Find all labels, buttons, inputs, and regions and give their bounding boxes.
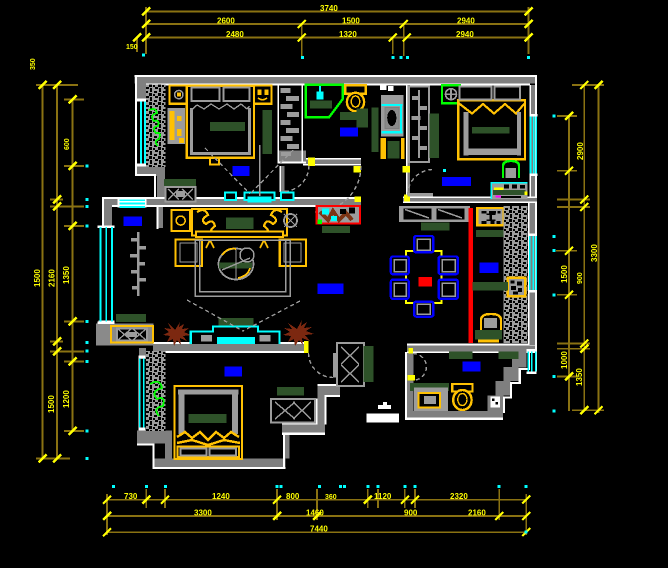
- svg-text:2480: 2480: [226, 30, 244, 39]
- svg-text:1240: 1240: [212, 492, 230, 501]
- svg-text:1500: 1500: [33, 269, 42, 287]
- svg-text:350: 350: [30, 58, 37, 70]
- svg-text:1000: 1000: [560, 351, 569, 369]
- svg-text:2940: 2940: [457, 17, 475, 26]
- svg-text:2900: 2900: [576, 142, 585, 160]
- svg-text:730: 730: [124, 492, 138, 501]
- svg-text:7440: 7440: [310, 525, 328, 534]
- svg-text:1500: 1500: [560, 265, 569, 283]
- svg-text:1460: 1460: [306, 509, 324, 518]
- svg-text:900: 900: [577, 272, 584, 284]
- svg-text:2160: 2160: [48, 269, 57, 287]
- svg-text:3300: 3300: [194, 509, 212, 518]
- svg-text:150: 150: [126, 44, 138, 51]
- svg-text:800: 800: [286, 492, 300, 501]
- svg-text:1120: 1120: [374, 492, 392, 501]
- svg-text:3300: 3300: [590, 244, 599, 262]
- svg-text:600: 600: [64, 138, 71, 150]
- svg-text:2600: 2600: [217, 17, 235, 26]
- svg-text:1320: 1320: [339, 30, 357, 39]
- svg-text:360: 360: [325, 494, 337, 501]
- svg-text:2160: 2160: [468, 509, 486, 518]
- svg-text:1200: 1200: [62, 390, 71, 408]
- svg-text:2320: 2320: [450, 492, 468, 501]
- svg-text:2940: 2940: [456, 30, 474, 39]
- svg-text:1350: 1350: [62, 266, 71, 284]
- svg-text:900: 900: [404, 509, 418, 518]
- svg-text:1500: 1500: [47, 395, 56, 413]
- svg-text:1350: 1350: [575, 368, 584, 386]
- svg-text:3740: 3740: [320, 4, 338, 13]
- svg-text:1500: 1500: [342, 17, 360, 26]
